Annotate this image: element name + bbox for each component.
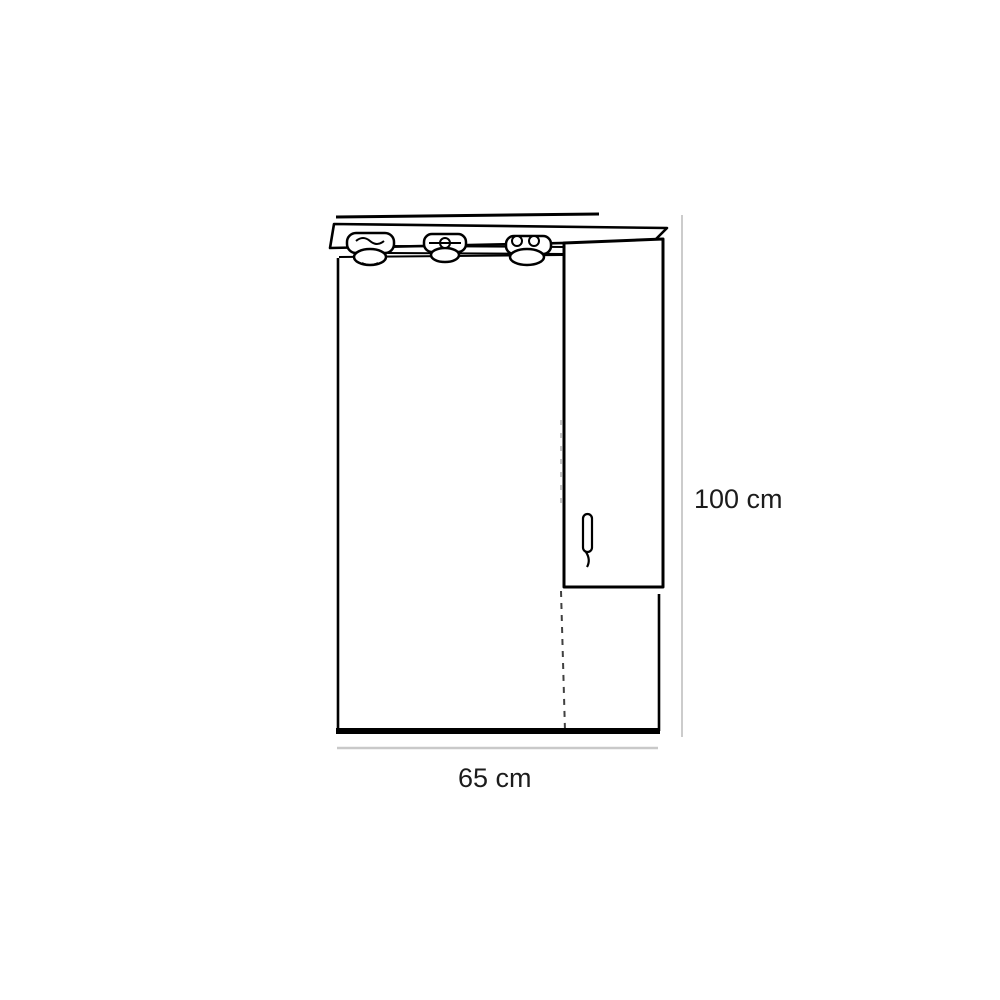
light-fixture-1-icon [347,233,394,265]
mirror-cabinet-drawing: 100 cm 65 cm [0,0,1000,1000]
light-fixture-3-icon [506,236,551,265]
width-dimension-label: 65 cm [458,763,532,793]
wall-rail-line [336,214,599,217]
height-dimension-label: 100 cm [694,484,783,514]
light-fixture-2-icon [424,234,466,262]
diagram-canvas: 100 cm 65 cm [0,0,1000,1000]
open-shelf [561,591,659,731]
side-cabinet-door [564,239,663,587]
